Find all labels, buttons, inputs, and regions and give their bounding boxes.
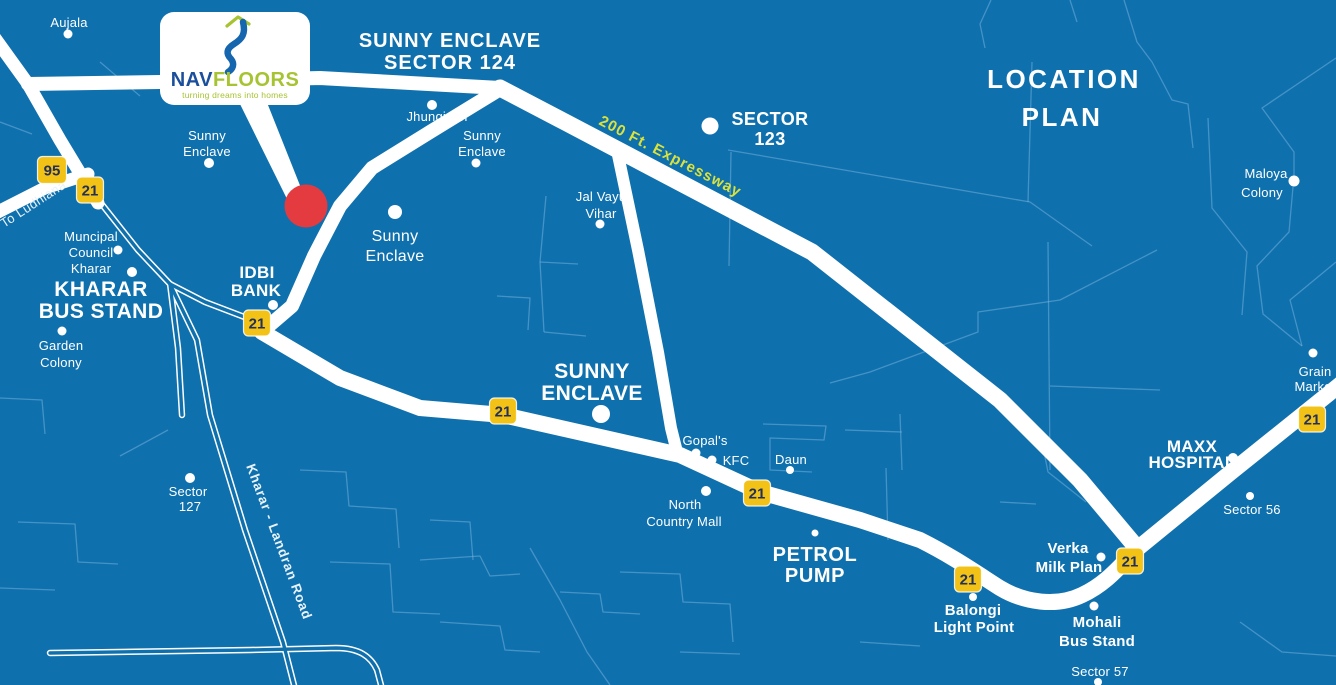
label-sunny-enclave-nw: Sunny Enclave — [183, 128, 231, 159]
svg-text:Enclave: Enclave — [365, 248, 424, 265]
label-kfc: KFC — [723, 453, 750, 468]
svg-text:Verka: Verka — [1047, 540, 1088, 557]
place-dot-balongi — [969, 593, 977, 601]
svg-text:SUNNY ENCLAVE: SUNNY ENCLAVE — [359, 30, 541, 52]
label-grain-market: Grain Market — [1295, 364, 1336, 394]
highway-shield-21: 21 — [1299, 406, 1326, 432]
navfloors-location-marker — [285, 185, 328, 228]
highway-shield-21: 21 — [244, 310, 271, 336]
logo-nav-text: NAV — [171, 69, 213, 91]
title-line-1: LOCATION — [987, 64, 1141, 94]
svg-text:ENCLAVE: ENCLAVE — [541, 382, 643, 405]
shield-number: 95 — [44, 163, 61, 180]
shield-number: 21 — [749, 486, 766, 503]
place-dot-sector-123 — [702, 118, 719, 135]
place-dot-idbi-bank — [268, 300, 278, 310]
svg-text:SECTOR: SECTOR — [731, 109, 808, 129]
svg-text:Grain: Grain — [1299, 364, 1332, 379]
shield-number: 21 — [960, 572, 977, 589]
svg-text:Sunny: Sunny — [188, 128, 226, 143]
svg-text:Market: Market — [1295, 379, 1336, 394]
svg-text:IDBI: IDBI — [239, 263, 274, 282]
svg-text:Balongi: Balongi — [945, 602, 1001, 619]
shield-number: 21 — [1304, 412, 1321, 429]
svg-text:Vihar: Vihar — [585, 206, 617, 221]
place-dot-petrol-pump — [812, 530, 819, 537]
svg-text:Sector: Sector — [169, 484, 208, 499]
label-sector-56: Sector 56 — [1223, 502, 1280, 517]
place-dot-sunny-enclave-nw — [204, 158, 214, 168]
location-plan-map: 200 Ft. Expressway To Ludhiana Kharar - … — [0, 0, 1336, 685]
place-dot-kharar-bus-stand — [127, 267, 137, 277]
place-dot-daun — [786, 466, 794, 474]
place-dot-sunny-enclave-mid — [388, 205, 402, 219]
label-sector-57: Sector 57 — [1071, 664, 1128, 679]
svg-text:KHARAR: KHARAR — [54, 278, 147, 301]
svg-text:Light Point: Light Point — [934, 619, 1015, 636]
highway-shield-21: 21 — [1117, 548, 1144, 574]
svg-text:SUNNY: SUNNY — [554, 360, 630, 383]
logo-floors-text: FLOORS — [213, 69, 299, 91]
svg-text:Country Mall: Country Mall — [646, 514, 721, 529]
svg-text:HOSPITAL: HOSPITAL — [1148, 453, 1235, 472]
label-petrol-pump: PETROL PUMP — [773, 544, 858, 587]
place-dot-sector-56 — [1246, 492, 1254, 500]
place-dot-maloya-colony — [1289, 176, 1300, 187]
svg-text:Garden: Garden — [39, 338, 84, 353]
headline-sunny-enclave-sector-124: SUNNY ENCLAVE SECTOR 124 — [359, 30, 541, 74]
highway-shield-95: 95 — [38, 157, 67, 184]
svg-text:North: North — [669, 497, 702, 512]
place-dot-mohali-bus-stand — [1090, 602, 1099, 611]
place-dot-gopals — [692, 449, 701, 458]
svg-text:PUMP: PUMP — [785, 565, 845, 587]
svg-text:Kharar: Kharar — [71, 261, 112, 276]
label-muncipal-council-kharar: Muncipal Council Kharar — [64, 229, 118, 276]
shield-number: 21 — [249, 316, 266, 333]
shield-number: 21 — [1122, 554, 1139, 571]
svg-text:Enclave: Enclave — [183, 144, 231, 159]
svg-text:127: 127 — [179, 499, 201, 514]
place-dot-north-country-mall — [701, 486, 711, 496]
svg-text:Council: Council — [69, 245, 114, 260]
highway-shield-21: 21 — [955, 566, 982, 592]
label-gopals: Gopal's — [682, 433, 727, 448]
label-sunny-enclave-n: Sunny Enclave — [458, 128, 506, 159]
place-dot-grain-market — [1309, 349, 1318, 358]
svg-text:Milk Plan: Milk Plan — [1036, 559, 1103, 576]
svg-text:Mohali: Mohali — [1073, 614, 1122, 631]
place-dot-kfc — [708, 456, 717, 465]
svg-text:Sunny: Sunny — [463, 128, 501, 143]
svg-text:Enclave: Enclave — [458, 144, 506, 159]
svg-text:Colony: Colony — [1241, 185, 1283, 200]
svg-text:SECTOR 124: SECTOR 124 — [384, 52, 516, 74]
shield-number: 21 — [495, 404, 512, 421]
highway-shield-21: 21 — [490, 398, 517, 424]
svg-text:Jal Vayu: Jal Vayu — [576, 189, 627, 204]
svg-text:BANK: BANK — [231, 281, 282, 300]
svg-text:Bus Stand: Bus Stand — [1059, 633, 1135, 650]
highway-shield-21: 21 — [744, 480, 771, 506]
shield-number: 21 — [82, 183, 99, 200]
place-dot-sunny-enclave-main — [592, 405, 610, 423]
svg-text:Colony: Colony — [40, 355, 82, 370]
label-jhungiyan: Jhungiyan — [406, 109, 467, 124]
label-kharar-bus-stand: KHARAR BUS STAND — [39, 278, 164, 323]
highway-shield-21: 21 — [77, 177, 104, 203]
place-dot-muncipal-council — [114, 246, 123, 255]
place-dot-sector-127 — [185, 473, 195, 483]
label-sunny-enclave-main: SUNNY ENCLAVE — [541, 360, 643, 405]
title-line-2: PLAN — [1022, 102, 1103, 132]
logo-wordmark: NAVFLOORS — [171, 69, 300, 91]
place-dot-aujala — [64, 30, 73, 39]
place-dot-sunny-enclave-n — [472, 159, 481, 168]
svg-text:Maloya: Maloya — [1244, 166, 1288, 181]
svg-text:Sunny: Sunny — [372, 228, 419, 245]
navfloors-logo: NAVFLOORS turning dreams into homes — [160, 12, 310, 105]
label-idbi-bank: IDBI BANK — [231, 263, 282, 300]
map-canvas: 200 Ft. Expressway To Ludhiana Kharar - … — [0, 0, 1336, 685]
svg-text:123: 123 — [754, 129, 785, 149]
label-aujala: Aujala — [50, 15, 88, 30]
label-daun: Daun — [775, 452, 807, 467]
place-dot-garden-colony — [58, 327, 67, 336]
logo-tagline: turning dreams into homes — [182, 90, 288, 100]
svg-text:PETROL: PETROL — [773, 544, 858, 566]
svg-text:BUS STAND: BUS STAND — [39, 300, 164, 323]
svg-text:Muncipal: Muncipal — [64, 229, 118, 244]
